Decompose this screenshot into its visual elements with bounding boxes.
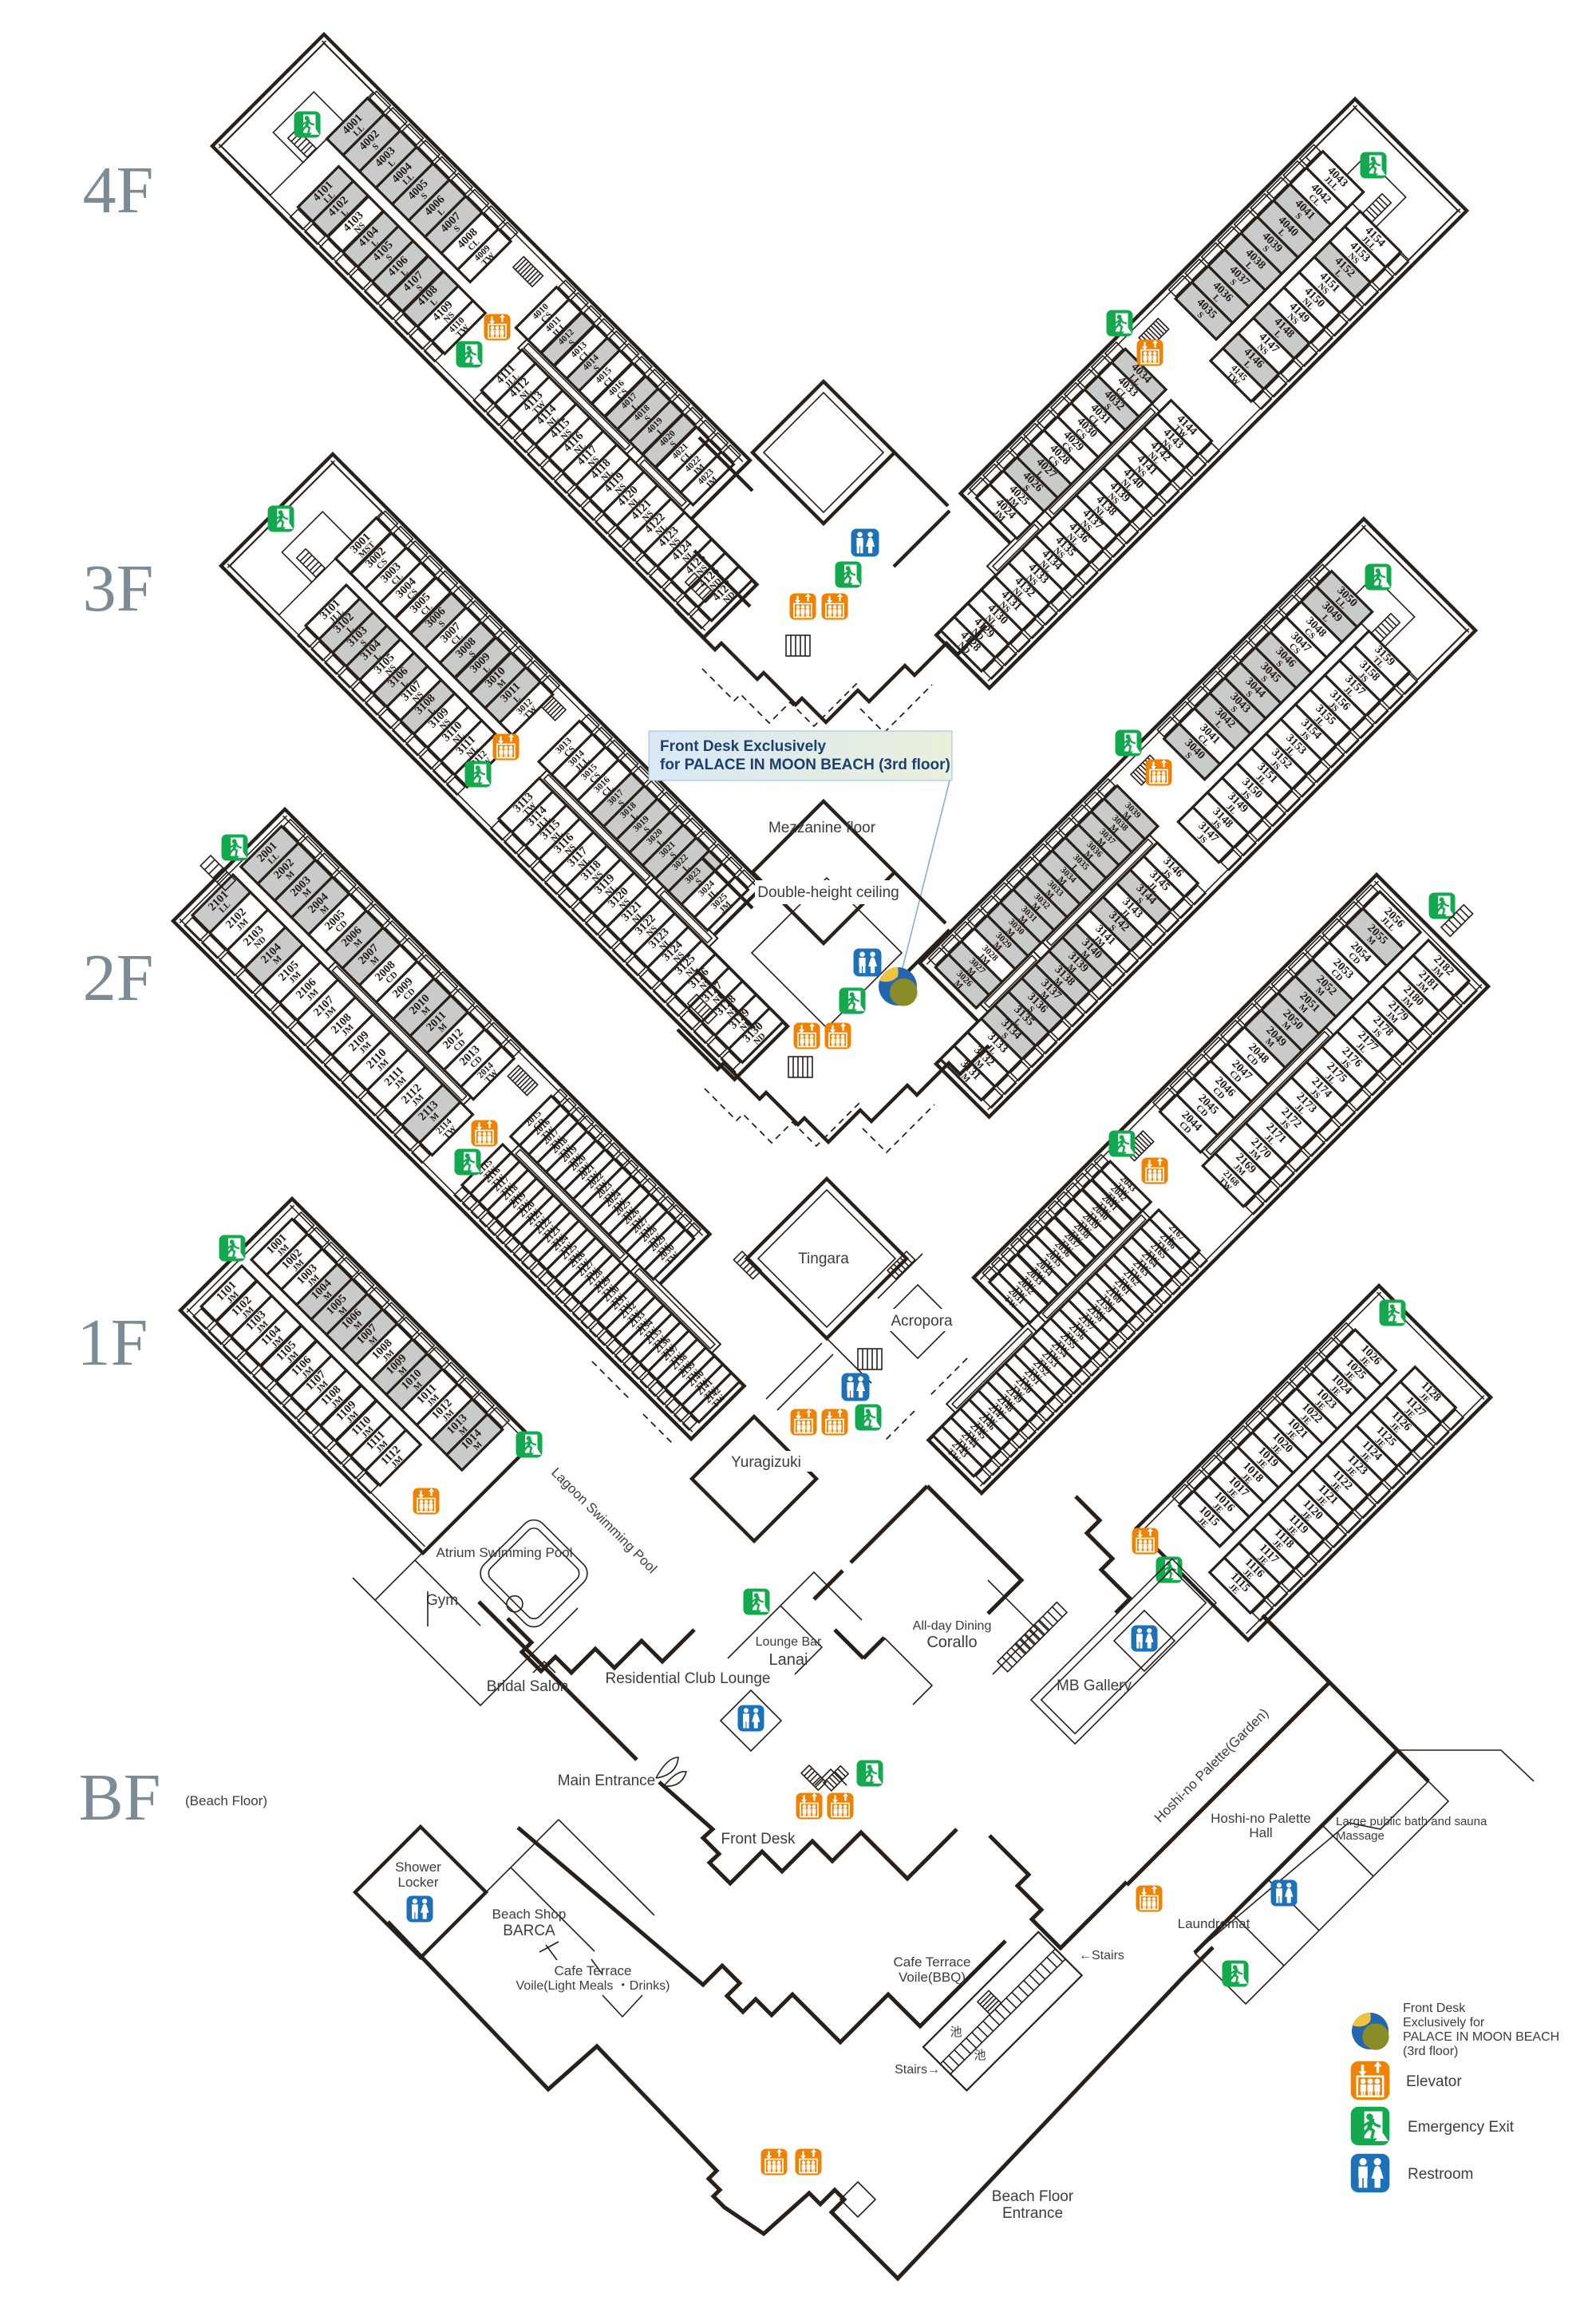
svg-text:BF: BF bbox=[79, 1761, 161, 1835]
svg-text:Acropora: Acropora bbox=[891, 1313, 953, 1330]
svg-text:Tingara: Tingara bbox=[798, 1251, 849, 1267]
svg-text:Gym: Gym bbox=[426, 1592, 458, 1609]
svg-text:Front Desk: Front Desk bbox=[721, 1831, 796, 1848]
svg-text:Atrium Swimming Pool: Atrium Swimming Pool bbox=[437, 1545, 573, 1560]
svg-text:Locker: Locker bbox=[397, 1875, 438, 1890]
svg-text:Restroom: Restroom bbox=[1408, 2166, 1473, 2183]
svg-text:Front Desk: Front Desk bbox=[1403, 2002, 1466, 2015]
svg-text:for PALACE IN MOON BEACH (3rd: for PALACE IN MOON BEACH (3rd floor) bbox=[660, 757, 950, 773]
svg-text:Hoshi-no Palette: Hoshi-no Palette bbox=[1211, 1811, 1311, 1826]
svg-text:BARCA: BARCA bbox=[503, 1923, 555, 1939]
svg-text:Laundromat: Laundromat bbox=[1178, 1916, 1250, 1931]
svg-text:Lounge Bar: Lounge Bar bbox=[756, 1635, 822, 1649]
svg-text:Entrance: Entrance bbox=[1002, 2205, 1063, 2222]
svg-text:4F: 4F bbox=[83, 153, 154, 227]
svg-text:Voile(BBQ): Voile(BBQ) bbox=[899, 1970, 966, 1985]
svg-text:Cafe Terrace: Cafe Terrace bbox=[554, 1963, 631, 1978]
svg-text:Emergency Exit: Emergency Exit bbox=[1408, 2119, 1515, 2136]
svg-text:Cafe Terrace: Cafe Terrace bbox=[893, 1954, 970, 1970]
svg-text:Beach Shop: Beach Shop bbox=[492, 1907, 567, 1922]
svg-text:Hall: Hall bbox=[1249, 1825, 1272, 1840]
svg-text:Elevator: Elevator bbox=[1406, 2073, 1462, 2090]
svg-text:Beach Floor: Beach Floor bbox=[992, 2188, 1074, 2205]
svg-text:PALACE IN MOON BEACH: PALACE IN MOON BEACH bbox=[1403, 2030, 1559, 2044]
svg-text:Massage: Massage bbox=[1336, 1829, 1385, 1843]
svg-text:(3rd floor): (3rd floor) bbox=[1403, 2045, 1458, 2058]
svg-text:Stairs→: Stairs→ bbox=[895, 2063, 940, 2077]
svg-text:1F: 1F bbox=[77, 1306, 148, 1380]
svg-text:Front Desk Exclusively: Front Desk Exclusively bbox=[660, 738, 826, 755]
svg-text:Yuragizuki: Yuragizuki bbox=[731, 1454, 801, 1471]
svg-text:(Beach Floor): (Beach Floor) bbox=[185, 1793, 267, 1808]
svg-text:MB Gallery: MB Gallery bbox=[1057, 1678, 1132, 1694]
svg-text:Large public bath and sauna: Large public bath and sauna bbox=[1336, 1815, 1487, 1828]
svg-text:All-day Dining: All-day Dining bbox=[913, 1619, 992, 1633]
svg-text:Main Entrance: Main Entrance bbox=[558, 1772, 656, 1789]
svg-text:2F: 2F bbox=[83, 941, 154, 1015]
svg-text:Lanai: Lanai bbox=[769, 1651, 808, 1669]
svg-text:Residential Club Lounge: Residential Club Lounge bbox=[605, 1670, 770, 1687]
svg-text:Double-height ceiling: Double-height ceiling bbox=[757, 884, 899, 901]
svg-text:Exclusively for: Exclusively for bbox=[1403, 2016, 1485, 2029]
svg-text:←Stairs: ←Stairs bbox=[1079, 1949, 1124, 1962]
svg-text:Bridal Salon: Bridal Salon bbox=[487, 1678, 568, 1695]
svg-text:3F: 3F bbox=[83, 551, 154, 626]
svg-text:池: 池 bbox=[974, 2049, 986, 2062]
svg-text:Voile(Light Meals ・Drinks): Voile(Light Meals ・Drinks) bbox=[516, 1979, 670, 1993]
svg-text:Shower: Shower bbox=[395, 1859, 441, 1875]
svg-text:Corallo: Corallo bbox=[926, 1634, 977, 1651]
svg-text:Mezzanine floor: Mezzanine floor bbox=[768, 820, 876, 836]
svg-text:池: 池 bbox=[950, 2025, 962, 2039]
